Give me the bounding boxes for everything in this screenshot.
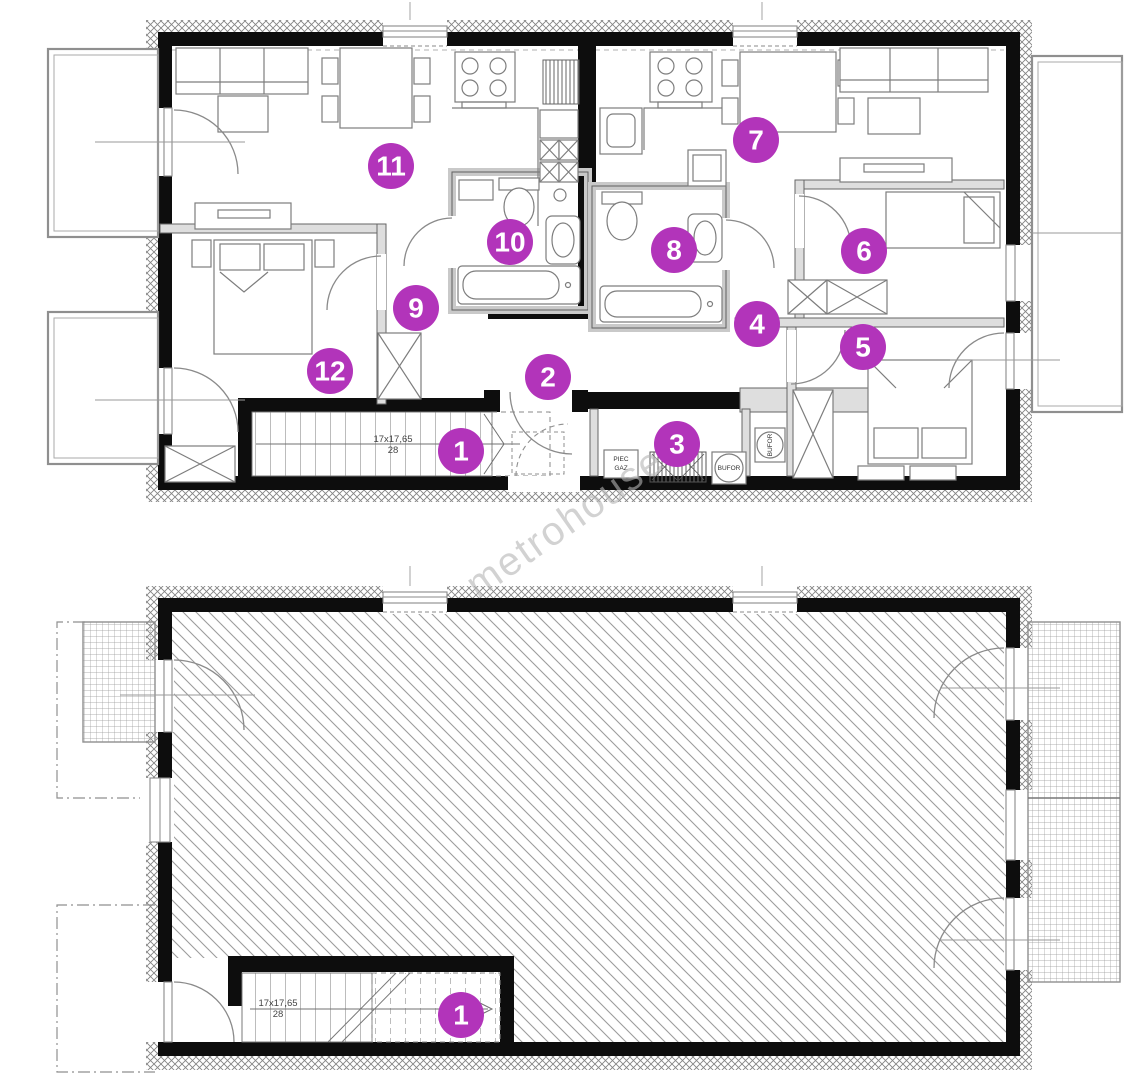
bathtub [458, 266, 580, 304]
bedroom6-furniture [886, 192, 1000, 248]
attic-stair-top-wall [228, 956, 514, 972]
chair [414, 58, 430, 84]
upper-floor-plan: 17x17,65 28 PIEC GAZ BUFOR BUFOR [48, 2, 1122, 502]
svg-text:4: 4 [749, 309, 765, 340]
attic-stair-right-wall [500, 972, 514, 1042]
attic-hatch-area-bottom [514, 958, 1006, 1042]
toilet [607, 202, 637, 240]
attic-terrace-left [83, 622, 155, 742]
chair [414, 96, 430, 122]
wardrobe [793, 390, 833, 478]
door-frame [1006, 648, 1014, 720]
bath8-door-gap [722, 218, 730, 270]
room-marker-8: 8 [651, 227, 697, 273]
door-frame [1006, 333, 1014, 389]
hall-door-stub-left [484, 390, 500, 412]
upper-top-window-left [383, 20, 447, 48]
tv-console [195, 203, 291, 229]
svg-text:1: 1 [453, 436, 469, 467]
window-icon [1006, 245, 1015, 301]
svg-text:1: 1 [453, 1000, 469, 1031]
hall-door-stub-right [572, 390, 588, 412]
nightstand [192, 240, 211, 267]
attic-stair-left-stub [228, 956, 242, 1006]
bench [858, 466, 904, 480]
svg-text:11: 11 [376, 151, 406, 182]
attic-terrace-right [1028, 622, 1120, 982]
attic-floor-plan: 17x17,65 28 [57, 566, 1120, 1072]
attic-top-window-left [383, 586, 447, 614]
upper-balcony-right [1032, 56, 1122, 412]
roof-outline-left-bottom [57, 905, 155, 1072]
svg-text:6: 6 [856, 236, 872, 267]
buffer-label-2: BUFOR [767, 433, 774, 456]
stair-dimension: 17x17,65 [373, 434, 412, 445]
coffee-table [218, 96, 268, 132]
room5-door-gap [787, 330, 796, 382]
sofa [840, 48, 988, 92]
room-marker-6: 6 [841, 228, 887, 274]
stove [650, 52, 712, 102]
chimney-block [543, 60, 579, 104]
floor-plan-page: 17x17,65 28 PIEC GAZ BUFOR BUFOR [0, 0, 1146, 1080]
room-marker-9: 9 [393, 285, 439, 331]
cabinet [540, 110, 578, 138]
attic-left-window [146, 778, 174, 842]
single-bed [886, 192, 1000, 248]
attic-hatch-area-main [172, 612, 1006, 958]
svg-text:8: 8 [666, 235, 682, 266]
door-frame [164, 368, 172, 434]
room-marker-4: 4 [734, 301, 780, 347]
svg-text:2: 2 [540, 362, 556, 393]
room-marker-2: 2 [525, 354, 571, 400]
stove [455, 52, 515, 102]
upper-right-window [1004, 245, 1032, 301]
svg-text:5: 5 [855, 332, 871, 363]
stair-top-wall [238, 398, 490, 412]
stair-left-wall [238, 398, 252, 490]
chair [838, 98, 854, 124]
wardrobe [165, 446, 235, 482]
stair-count: 28 [388, 445, 399, 456]
room-marker-5: 5 [840, 324, 886, 370]
door-frame [164, 660, 172, 732]
svg-text:12: 12 [314, 356, 345, 387]
bath10-door-gap [448, 216, 456, 268]
door-frame [1006, 898, 1014, 970]
room-marker-3: 3 [654, 421, 700, 467]
upper-balcony-left-bottom [48, 312, 158, 464]
boiler-room-top-wall [588, 392, 740, 409]
hall4-wardrobes [788, 280, 887, 314]
svg-text:10: 10 [494, 227, 525, 258]
chair [322, 58, 338, 84]
buffer-label-1: BUFOR [718, 465, 741, 472]
chair [722, 98, 738, 124]
chair [722, 60, 738, 86]
room12-door-gap [377, 254, 386, 310]
attic-top-window-right [733, 586, 797, 614]
double-bed [214, 240, 312, 354]
coffee-table [868, 98, 920, 134]
room-marker-12: 12 [307, 348, 353, 394]
upper-balcony-left-top [48, 49, 158, 237]
dining-table [340, 48, 412, 128]
bench [910, 466, 956, 480]
floor-plans-drawing: 17x17,65 28 PIEC GAZ BUFOR BUFOR [0, 0, 1146, 1080]
hall9-wardrobe [378, 333, 421, 399]
upper-top-window-right [733, 20, 797, 48]
nightstand [315, 240, 334, 267]
stair-count: 28 [273, 1009, 284, 1020]
shelf [459, 180, 493, 200]
room-marker-1: 1 [438, 428, 484, 474]
sofa [176, 48, 308, 94]
door-frame [164, 982, 172, 1042]
room6-door-gap [795, 194, 804, 248]
attic-left-entry-door [146, 982, 174, 1042]
svg-text:9: 9 [408, 293, 424, 324]
room-marker-7: 7 [733, 117, 779, 163]
room-marker-1: 1 [438, 992, 484, 1038]
chair [322, 96, 338, 122]
room-marker-11: 11 [368, 143, 414, 189]
window-icon [1006, 790, 1015, 860]
stair-dimension: 17x17,65 [258, 998, 297, 1009]
svg-text:3: 3 [669, 429, 685, 460]
room-marker-10: 10 [487, 219, 533, 265]
tv-console [840, 158, 952, 182]
svg-text:7: 7 [748, 125, 764, 156]
upper-right-balcony-door [1004, 333, 1032, 389]
entrance-gap [508, 476, 580, 492]
